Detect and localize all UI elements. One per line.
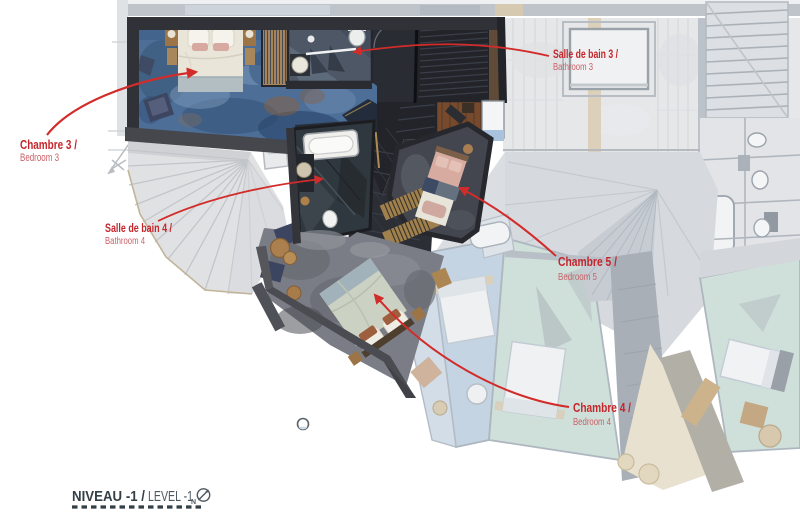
svg-text:LEVEL -1: LEVEL -1 (148, 489, 193, 505)
svg-text:Salle de bain 4 /: Salle de bain 4 / (105, 223, 173, 235)
svg-text:Salle de bain 3 /: Salle de bain 3 / (553, 49, 619, 61)
svg-text:Bathroom 4: Bathroom 4 (105, 236, 145, 247)
svg-text:NIVEAU -1 /: NIVEAU -1 / (72, 489, 145, 505)
svg-text:Bedroom 3: Bedroom 3 (20, 152, 59, 164)
svg-text:Chambre 4 /: Chambre 4 / (573, 401, 631, 415)
svg-text:Bathroom 3: Bathroom 3 (553, 62, 593, 73)
svg-text:Bedroom 4: Bedroom 4 (573, 416, 611, 428)
svg-text:N: N (191, 499, 196, 506)
svg-text:Chambre 3 /: Chambre 3 / (20, 137, 77, 152)
svg-text:Bedroom 5: Bedroom 5 (558, 271, 597, 283)
svg-text:Chambre 5 /: Chambre 5 / (558, 255, 617, 269)
